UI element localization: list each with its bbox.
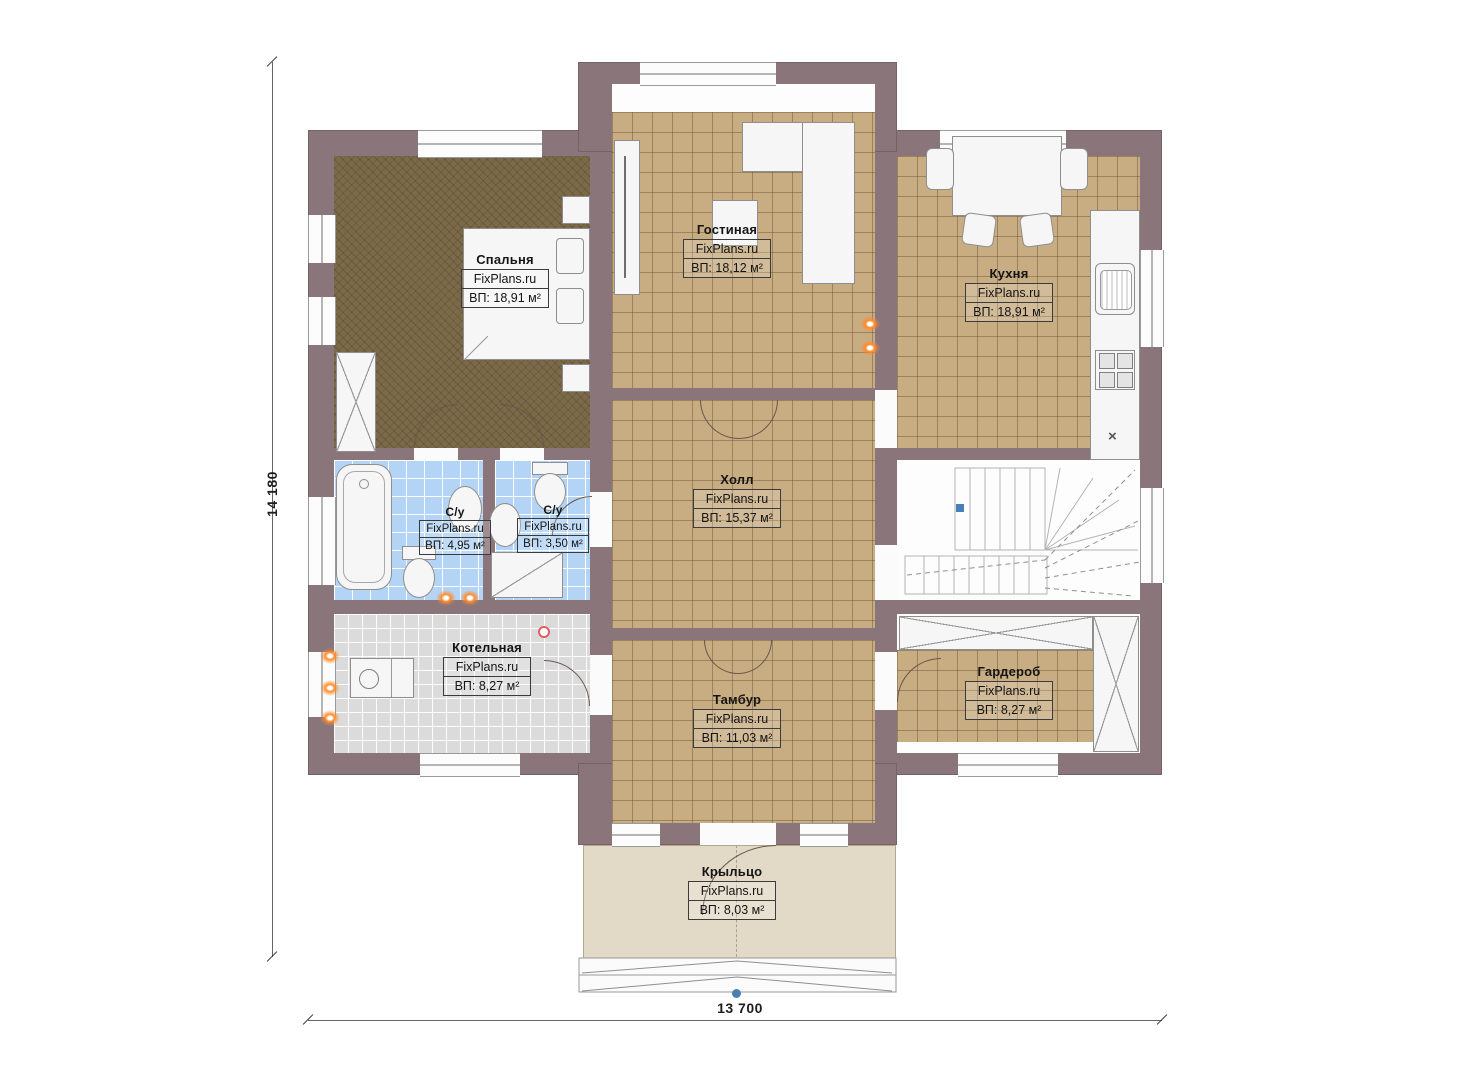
stair-reference-point bbox=[956, 504, 964, 512]
dining-chair bbox=[961, 212, 997, 248]
room-name: Холл bbox=[670, 472, 804, 487]
entry-door-opening bbox=[700, 823, 776, 845]
room-area: ВП: 18,91 м² bbox=[462, 288, 548, 307]
floor-plan: 14 180 13 700 bbox=[0, 0, 1474, 1080]
stove-burner bbox=[1117, 372, 1133, 388]
room-name: С/у bbox=[505, 503, 601, 517]
radiator-icon bbox=[860, 340, 880, 356]
reference-point-icon bbox=[732, 989, 741, 998]
window-bedroom-left-2 bbox=[308, 297, 336, 345]
porch-steps bbox=[578, 957, 897, 993]
dining-table bbox=[952, 136, 1062, 216]
dining-chair bbox=[1019, 212, 1055, 248]
room-brand: FixPlans.ru bbox=[684, 240, 770, 258]
stove-burner bbox=[1099, 372, 1115, 388]
radiator-icon bbox=[460, 590, 480, 606]
dining-chair bbox=[1060, 148, 1088, 190]
room-label-porch: Крыльцо FixPlans.ru ВП: 8,03 м² bbox=[665, 864, 799, 920]
room-area: ВП: 3,50 м² bbox=[518, 535, 588, 552]
room-area: ВП: 18,12 м² bbox=[684, 258, 770, 277]
room-name: Спальня bbox=[438, 252, 572, 267]
room-brand: FixPlans.ru bbox=[444, 658, 530, 676]
room-info-box: FixPlans.ru ВП: 8,03 м² bbox=[688, 881, 776, 920]
room-label-boiler-room: Котельная FixPlans.ru ВП: 8,27 м² bbox=[420, 640, 554, 696]
sofa-corner-side bbox=[802, 122, 855, 284]
horizontal-dimension-line bbox=[308, 1020, 1162, 1021]
room-name: С/у bbox=[407, 505, 503, 519]
room-info-box: FixPlans.ru ВП: 18,12 м² bbox=[683, 239, 771, 278]
room-info-box: FixPlans.ru ВП: 18,91 м² bbox=[965, 283, 1053, 322]
dining-chair bbox=[926, 148, 954, 190]
vertical-dimension-label: 14 180 bbox=[264, 464, 280, 524]
room-name: Гостиная bbox=[660, 222, 794, 237]
radiator-icon bbox=[320, 710, 340, 726]
room-name: Кухня bbox=[942, 266, 1076, 281]
bathtub-drain bbox=[359, 479, 369, 489]
room-area: ВП: 8,03 м² bbox=[689, 900, 775, 919]
window-boiler-bottom bbox=[420, 753, 520, 777]
room-label-bedroom: Спальня FixPlans.ru ВП: 18,91 м² bbox=[438, 252, 572, 308]
counter-end-mark: × bbox=[1108, 428, 1117, 445]
room-brand: FixPlans.ru bbox=[689, 882, 775, 900]
room-info-box: FixPlans.ru ВП: 15,37 м² bbox=[693, 489, 781, 528]
room-info-box: FixPlans.ru ВП: 18,91 м² bbox=[461, 269, 549, 308]
stove-burner bbox=[1117, 353, 1133, 369]
room-brand: FixPlans.ru bbox=[694, 710, 780, 728]
room-area: ВП: 18,91 м² bbox=[966, 302, 1052, 321]
wall-hall-vestibule-right bbox=[772, 628, 875, 640]
bathtub bbox=[336, 464, 392, 590]
window-living-bay bbox=[640, 62, 776, 86]
window-bathroom-left bbox=[308, 497, 336, 585]
tv-stand bbox=[614, 140, 640, 295]
room-info-box: FixPlans.ru ВП: 11,03 м² bbox=[693, 709, 781, 748]
wardrobe-cabinet-top bbox=[899, 616, 1093, 650]
room-info-box: FixPlans.ru ВП: 8,27 м² bbox=[965, 681, 1053, 720]
nightstand bbox=[562, 364, 590, 392]
radiator-icon bbox=[320, 648, 340, 664]
room-info-box: FixPlans.ru ВП: 3,50 м² bbox=[517, 518, 589, 553]
room-name: Котельная bbox=[420, 640, 554, 655]
room-area: ВП: 8,27 м² bbox=[444, 676, 530, 695]
room-brand: FixPlans.ru bbox=[966, 284, 1052, 302]
living-room-bay-sill bbox=[612, 84, 875, 114]
boiler-dial bbox=[359, 669, 379, 689]
room-label-bathroom-1: С/у FixPlans.ru ВП: 4,95 м² bbox=[407, 505, 503, 555]
bedroom-closet bbox=[336, 352, 376, 452]
sink-basin bbox=[1100, 270, 1132, 310]
window-kitchen-right bbox=[1140, 250, 1164, 347]
wall-hall-vestibule-left bbox=[612, 628, 704, 640]
room-brand: FixPlans.ru bbox=[518, 519, 588, 535]
room-name: Гардероб bbox=[945, 664, 1073, 679]
radiator-icon bbox=[860, 316, 880, 332]
room-area: ВП: 8,27 м² bbox=[966, 700, 1052, 719]
heat-point-icon bbox=[538, 626, 550, 638]
boiler-divider bbox=[391, 659, 392, 697]
bed-blanket-fold bbox=[464, 336, 488, 360]
tv-panel bbox=[624, 156, 626, 278]
bedroom-door-opening-right bbox=[500, 448, 544, 460]
room-name: Тамбур bbox=[670, 692, 804, 707]
room-area: ВП: 11,03 м² bbox=[694, 728, 780, 747]
window-bedroom-top bbox=[418, 130, 542, 158]
wardrobe-door-opening bbox=[875, 652, 897, 710]
radiator-icon bbox=[320, 680, 340, 696]
room-name: Крыльцо bbox=[665, 864, 799, 879]
room-info-box: FixPlans.ru ВП: 4,95 м² bbox=[419, 520, 491, 555]
kitchen-passage-opening bbox=[875, 390, 897, 448]
wall-stairs-wardrobe bbox=[897, 600, 1140, 614]
room-info-box: FixPlans.ru ВП: 8,27 м² bbox=[443, 657, 531, 696]
horizontal-dimension-label: 13 700 bbox=[705, 1000, 775, 1016]
toilet-bowl bbox=[403, 558, 435, 598]
shower-tray bbox=[491, 552, 563, 598]
room-label-bathroom-2: С/у FixPlans.ru ВП: 3,50 м² bbox=[505, 503, 601, 553]
entry-sidelight-right bbox=[800, 823, 848, 847]
room-brand: FixPlans.ru bbox=[462, 270, 548, 288]
room-brand: FixPlans.ru bbox=[966, 682, 1052, 700]
window-bedroom-left-1 bbox=[308, 215, 336, 263]
window-wardrobe-bottom bbox=[958, 753, 1058, 777]
room-label-hall: Холл FixPlans.ru ВП: 15,37 м² bbox=[670, 472, 804, 528]
entry-sidelight-left bbox=[612, 823, 660, 847]
window-stairs-right bbox=[1140, 488, 1164, 583]
room-area: ВП: 15,37 м² bbox=[694, 508, 780, 527]
room-label-wardrobe: Гардероб FixPlans.ru ВП: 8,27 м² bbox=[945, 664, 1073, 720]
room-label-vestibule: Тамбур FixPlans.ru ВП: 11,03 м² bbox=[670, 692, 804, 748]
boiler-door-opening bbox=[590, 655, 612, 715]
staircase bbox=[897, 460, 1140, 600]
wardrobe-cabinet-right bbox=[1093, 616, 1139, 752]
wall-living-hall-left bbox=[612, 388, 700, 400]
radiator-icon bbox=[436, 590, 456, 606]
room-brand: FixPlans.ru bbox=[694, 490, 780, 508]
room-label-living-room: Гостиная FixPlans.ru ВП: 18,12 м² bbox=[660, 222, 794, 278]
stove-burner bbox=[1099, 353, 1115, 369]
room-brand: FixPlans.ru bbox=[420, 521, 490, 537]
wall-living-hall-right bbox=[778, 388, 875, 400]
boiler-unit bbox=[350, 658, 414, 698]
nightstand bbox=[562, 196, 590, 224]
room-label-kitchen: Кухня FixPlans.ru ВП: 18,91 м² bbox=[942, 266, 1076, 322]
bedroom-door-opening-left bbox=[414, 448, 458, 460]
room-area: ВП: 4,95 м² bbox=[420, 537, 490, 554]
kitchen-counter bbox=[1090, 210, 1140, 460]
stairs-passage-opening bbox=[875, 545, 897, 600]
